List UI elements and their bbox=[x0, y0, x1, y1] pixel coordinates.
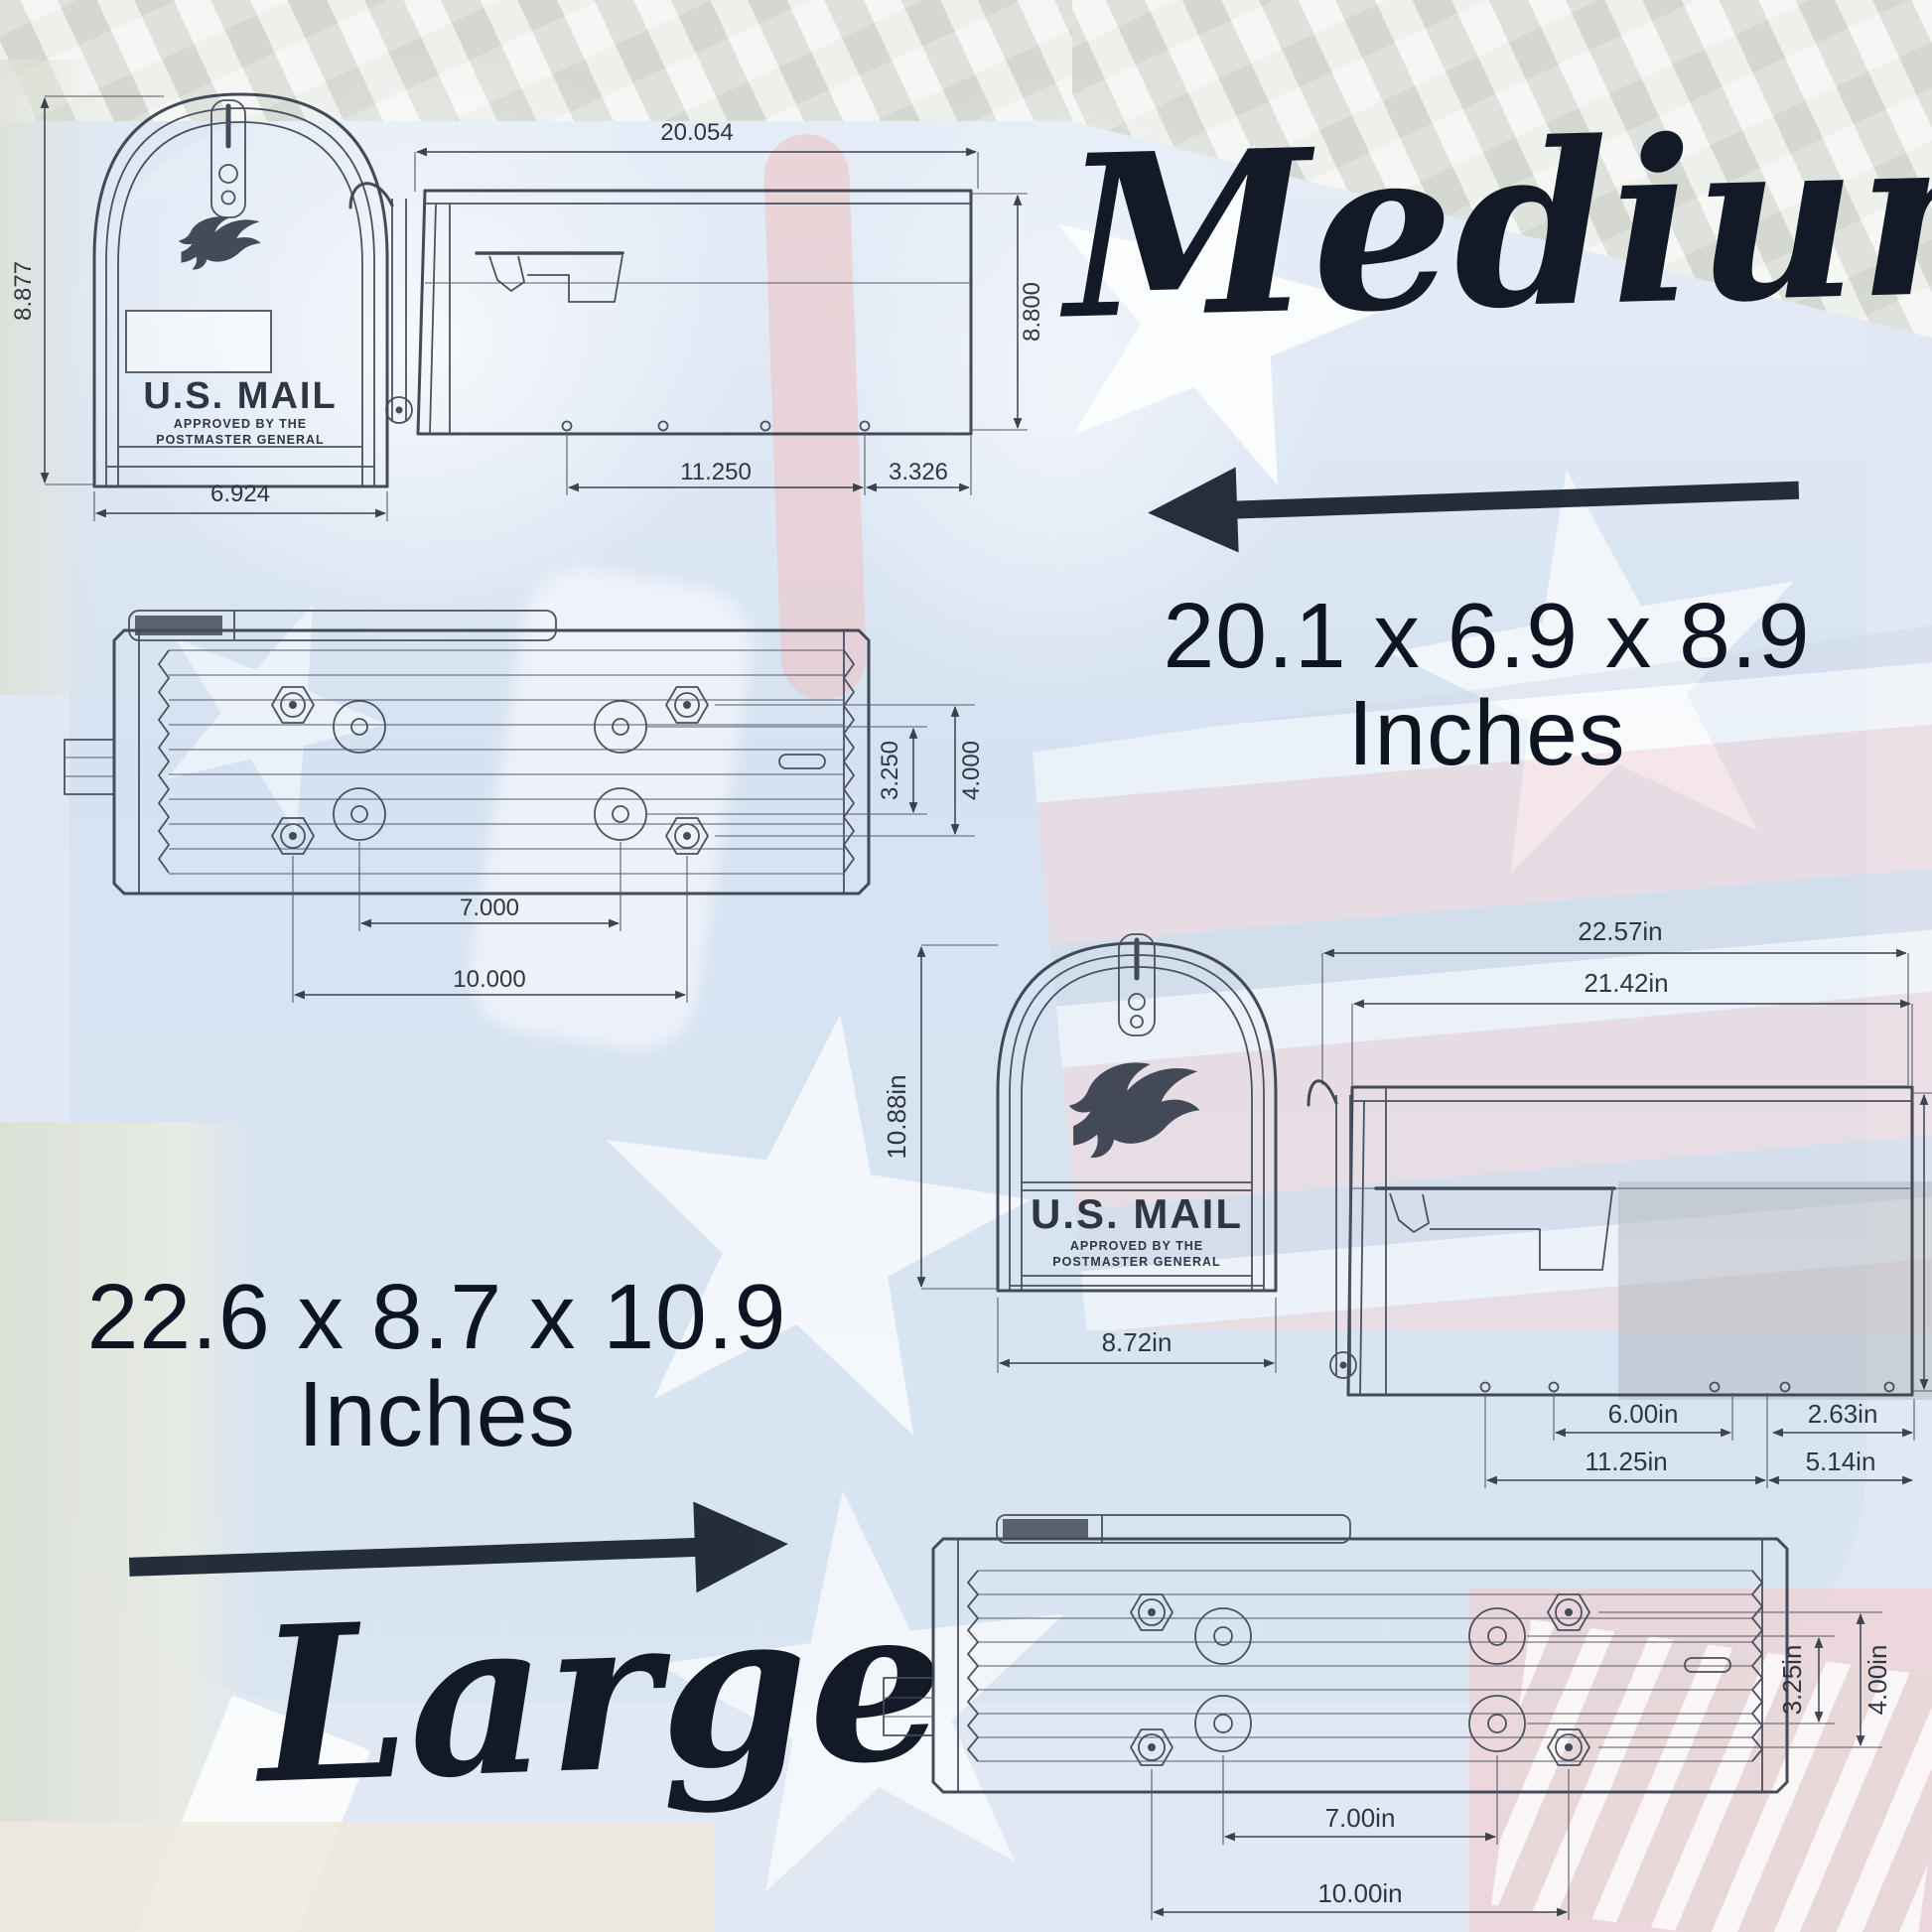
postmaster-text: POSTMASTER GENERAL bbox=[1052, 1255, 1220, 1269]
large-dimensions-unit: Inches bbox=[25, 1366, 849, 1463]
large-bottom-view-drawing: 3.25in 4.00in 7.00in 10.00in bbox=[854, 1442, 1932, 1932]
address-plate bbox=[126, 311, 271, 372]
mounting-bolts bbox=[272, 687, 708, 854]
mounting-bolts bbox=[1131, 1594, 1589, 1765]
dim-medium-bolt-rows-inner: 3.250 bbox=[877, 741, 903, 800]
dim-medium-front-width: 6.924 bbox=[210, 481, 270, 507]
dim-medium-base-rear: 3.326 bbox=[889, 459, 948, 485]
dim-medium-bolt-rows-outer: 4.000 bbox=[958, 741, 985, 800]
large-dimensions-value: 22.6 x 8.7 x 10.9 bbox=[25, 1269, 849, 1366]
dim-medium-front-height: 8.877 bbox=[10, 261, 37, 321]
dim-large-bolt-span-inner: 7.00in bbox=[1325, 1803, 1396, 1833]
dim-large-front-width: 8.72in bbox=[1102, 1327, 1173, 1357]
us-mail-text: U.S. MAIL bbox=[143, 375, 337, 417]
dim-large-hole-span: 6.00in bbox=[1608, 1399, 1679, 1429]
approved-text: APPROVED BY THE bbox=[174, 417, 307, 431]
dim-medium-base-front: 11.250 bbox=[680, 459, 752, 485]
dim-medium-bolt-span-outer: 10.000 bbox=[453, 966, 525, 993]
large-dimensions-text: 22.6 x 8.7 x 10.9 Inches bbox=[25, 1269, 849, 1462]
infographic-canvas: U.S. MAIL APPROVED BY THE POSTMASTER GEN… bbox=[0, 0, 1932, 1932]
medium-side-view-drawing: 20.054 8.800 11.250 3.326 bbox=[333, 94, 1067, 521]
medium-dimensions-unit: Inches bbox=[1047, 685, 1926, 782]
dim-large-bolt-rows-outer: 4.00in bbox=[1863, 1645, 1892, 1716]
eagle-icon bbox=[179, 216, 261, 269]
dim-large-length-overall: 22.57in bbox=[1578, 916, 1662, 946]
large-size-title: Large bbox=[255, 1590, 817, 1802]
dim-medium-bolt-span-inner: 7.000 bbox=[460, 895, 519, 921]
eagle-icon bbox=[1069, 1062, 1200, 1158]
medium-size-title: Medium bbox=[1061, 116, 1932, 340]
dim-large-bolt-rows-inner: 3.25in bbox=[1777, 1645, 1807, 1716]
dim-large-front-height: 10.88in bbox=[882, 1074, 911, 1159]
dim-medium-length: 20.054 bbox=[660, 119, 733, 146]
dim-large-bolt-span-outer: 10.00in bbox=[1317, 1878, 1402, 1908]
dim-large-length-body: 21.42in bbox=[1584, 968, 1668, 998]
dim-large-hole-end: 2.63in bbox=[1808, 1399, 1878, 1429]
medium-dimensions-text: 20.1 x 6.9 x 8.9 Inches bbox=[1047, 588, 1926, 781]
medium-dimensions-value: 20.1 x 6.9 x 8.9 bbox=[1047, 588, 1926, 685]
background-surface bbox=[0, 1822, 715, 1932]
us-mail-text: U.S. MAIL bbox=[1031, 1190, 1243, 1237]
dim-medium-side-height: 8.800 bbox=[1019, 282, 1045, 342]
large-side-view-drawing: 22.57in 21.42in 6.00in 2.63in 11.25in 5.… bbox=[1307, 898, 1932, 1494]
approved-text: APPROVED BY THE bbox=[1070, 1239, 1203, 1253]
postmaster-text: POSTMASTER GENERAL bbox=[156, 433, 324, 447]
